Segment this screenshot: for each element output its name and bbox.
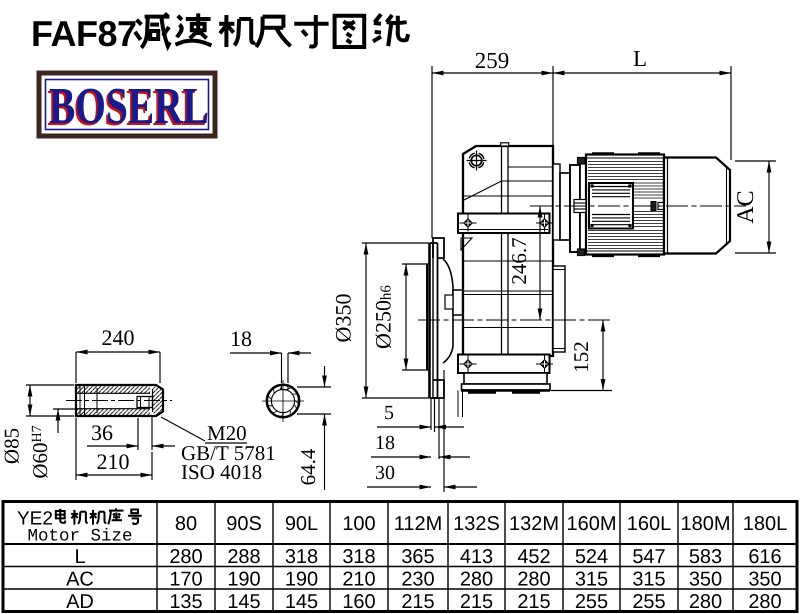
svg-text:18: 18 <box>375 432 395 454</box>
svg-text:135: 135 <box>169 591 202 613</box>
svg-text:FAF87: FAF87 <box>31 13 137 54</box>
svg-text:255: 255 <box>632 591 665 613</box>
svg-text:547: 547 <box>632 546 665 568</box>
svg-text:210: 210 <box>97 449 130 474</box>
svg-text:280: 280 <box>460 569 493 591</box>
svg-text:280: 280 <box>689 591 722 613</box>
svg-text:524: 524 <box>575 546 608 568</box>
svg-text:5: 5 <box>384 402 394 424</box>
svg-text:112M: 112M <box>394 513 443 535</box>
svg-text:365: 365 <box>401 546 434 568</box>
svg-text:100: 100 <box>342 513 375 535</box>
svg-text:215: 215 <box>460 591 493 613</box>
svg-text:180L: 180L <box>743 513 788 535</box>
svg-text:583: 583 <box>689 546 722 568</box>
svg-text:36: 36 <box>91 420 113 445</box>
svg-text:160: 160 <box>342 591 375 613</box>
svg-text:132M: 132M <box>509 513 559 535</box>
svg-text:80: 80 <box>175 513 197 535</box>
svg-text:280: 280 <box>169 546 202 568</box>
svg-text:315: 315 <box>632 569 665 591</box>
svg-text:64.4: 64.4 <box>296 448 320 485</box>
svg-text:90S: 90S <box>226 513 262 535</box>
svg-text:210: 210 <box>342 569 375 591</box>
svg-text:Motor Size: Motor Size <box>27 527 132 547</box>
svg-text:AC: AC <box>66 569 94 591</box>
svg-text:452: 452 <box>517 546 550 568</box>
svg-text:246.7: 246.7 <box>507 237 531 284</box>
svg-text:18: 18 <box>230 326 252 351</box>
svg-text:255: 255 <box>575 591 608 613</box>
svg-text:L: L <box>633 46 647 71</box>
svg-text:ISO 4018: ISO 4018 <box>181 460 262 484</box>
svg-text:288: 288 <box>227 546 260 568</box>
svg-text:L: L <box>74 546 85 568</box>
svg-text:280: 280 <box>517 569 550 591</box>
svg-text:259: 259 <box>475 48 510 73</box>
svg-text:190: 190 <box>285 569 318 591</box>
svg-text:215: 215 <box>517 591 550 613</box>
svg-text:145: 145 <box>285 591 318 613</box>
svg-text:160L: 160L <box>627 513 672 535</box>
svg-text:190: 190 <box>227 569 260 591</box>
svg-text:Ø350: Ø350 <box>331 294 356 343</box>
svg-text:Ø85: Ø85 <box>0 428 24 464</box>
svg-text:132S: 132S <box>453 513 500 535</box>
svg-text:215: 215 <box>401 591 434 613</box>
svg-text:BOSERL: BOSERL <box>49 78 209 135</box>
svg-text:170: 170 <box>169 569 202 591</box>
svg-text:350: 350 <box>689 569 722 591</box>
svg-text:413: 413 <box>460 546 493 568</box>
svg-text:180M: 180M <box>680 513 730 535</box>
svg-text:318: 318 <box>342 546 375 568</box>
svg-text:616: 616 <box>748 546 781 568</box>
svg-text:30: 30 <box>375 462 395 484</box>
svg-text:AC: AC <box>733 190 759 223</box>
svg-text:318: 318 <box>285 546 318 568</box>
svg-text:240: 240 <box>102 325 135 350</box>
svg-text:90L: 90L <box>285 513 318 535</box>
svg-text:AD: AD <box>66 591 94 613</box>
svg-text:145: 145 <box>227 591 260 613</box>
svg-text:315: 315 <box>575 569 608 591</box>
svg-text:152: 152 <box>569 341 593 373</box>
svg-text:350: 350 <box>748 569 781 591</box>
svg-text:280: 280 <box>748 591 781 613</box>
svg-text:160M: 160M <box>566 513 616 535</box>
svg-text:230: 230 <box>401 569 434 591</box>
